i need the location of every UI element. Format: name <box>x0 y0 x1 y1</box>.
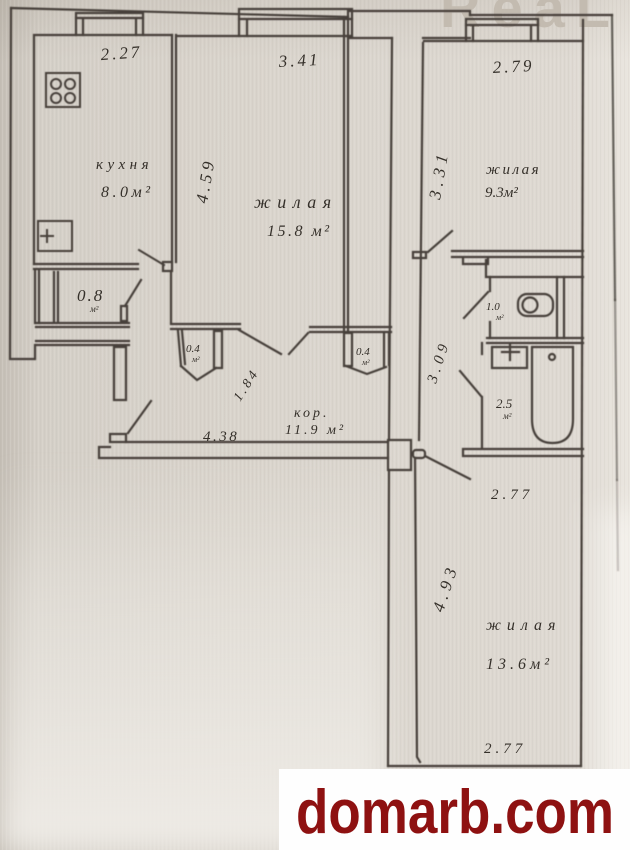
svg-text:м²: м² <box>89 304 99 314</box>
svg-text:жилая: жилая <box>254 192 338 212</box>
svg-text:2.5: 2.5 <box>496 396 513 411</box>
svg-text:м²: м² <box>495 313 504 322</box>
svg-text:0.4: 0.4 <box>356 346 370 358</box>
svg-text:13.6м²: 13.6м² <box>486 656 553 673</box>
svg-text:жилая: жилая <box>486 162 541 178</box>
svg-text:м²: м² <box>191 355 200 364</box>
svg-text:8.0м²: 8.0м² <box>101 184 154 201</box>
svg-text:м²: м² <box>502 411 512 421</box>
svg-text:domarb.com: domarb.com <box>296 778 614 847</box>
svg-text:0.4: 0.4 <box>186 343 200 355</box>
svg-text:2.77: 2.77 <box>484 741 526 757</box>
svg-text:1.0: 1.0 <box>486 301 500 313</box>
svg-text:11.9 м²: 11.9 м² <box>285 423 346 438</box>
svg-text:2.79: 2.79 <box>492 56 535 77</box>
svg-text:жилая: жилая <box>486 617 562 634</box>
svg-text:2.27: 2.27 <box>100 42 143 64</box>
svg-text:2.77: 2.77 <box>491 487 533 503</box>
svg-text:м²: м² <box>361 358 370 367</box>
svg-text:9.3м²: 9.3м² <box>485 185 518 201</box>
svg-text:кухня: кухня <box>96 157 153 173</box>
svg-text:15.8 м²: 15.8 м² <box>267 223 332 240</box>
svg-text:3.41: 3.41 <box>277 50 321 71</box>
svg-text:кор.: кор. <box>294 406 330 421</box>
svg-text:4.38: 4.38 <box>203 429 239 445</box>
svg-text:0.8: 0.8 <box>77 286 104 305</box>
